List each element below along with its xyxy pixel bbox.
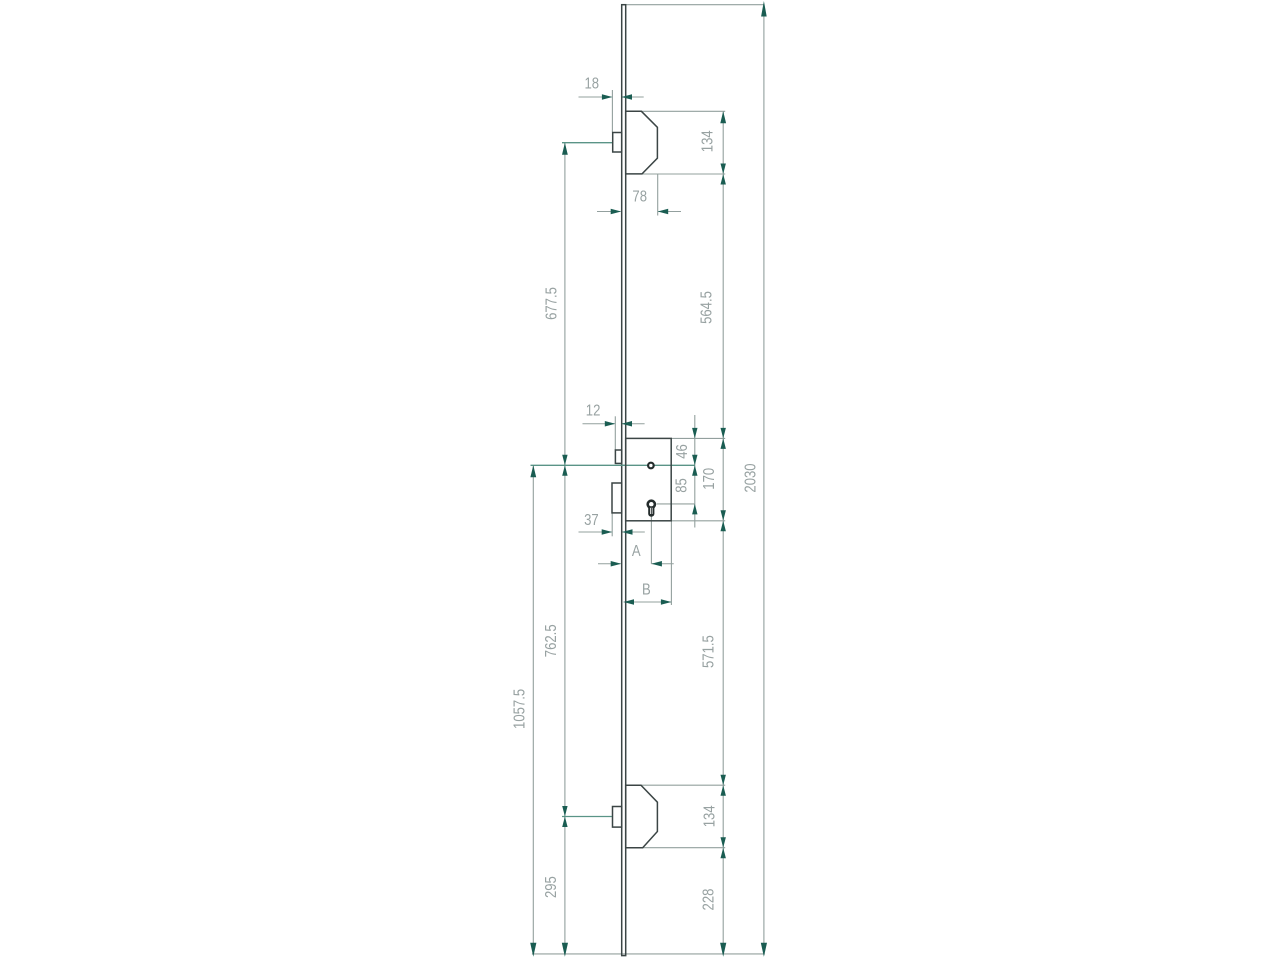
svg-text:762.5: 762.5 [543,624,560,657]
svg-text:677.5: 677.5 [543,287,560,320]
svg-text:12: 12 [586,402,601,419]
svg-text:2030: 2030 [743,463,760,492]
svg-text:78: 78 [632,188,647,205]
svg-text:18: 18 [585,75,600,92]
svg-text:A: A [632,543,641,560]
svg-text:170: 170 [701,468,718,490]
svg-text:295: 295 [543,876,560,898]
svg-text:85: 85 [673,478,690,493]
svg-text:37: 37 [584,512,599,529]
svg-text:228: 228 [700,889,717,911]
svg-text:B: B [642,581,651,598]
svg-text:564.5: 564.5 [698,291,715,324]
svg-text:46: 46 [674,444,691,459]
svg-text:1057.5: 1057.5 [512,689,529,729]
svg-text:134: 134 [701,805,718,827]
svg-text:134: 134 [699,130,716,152]
svg-text:571.5: 571.5 [700,635,717,668]
